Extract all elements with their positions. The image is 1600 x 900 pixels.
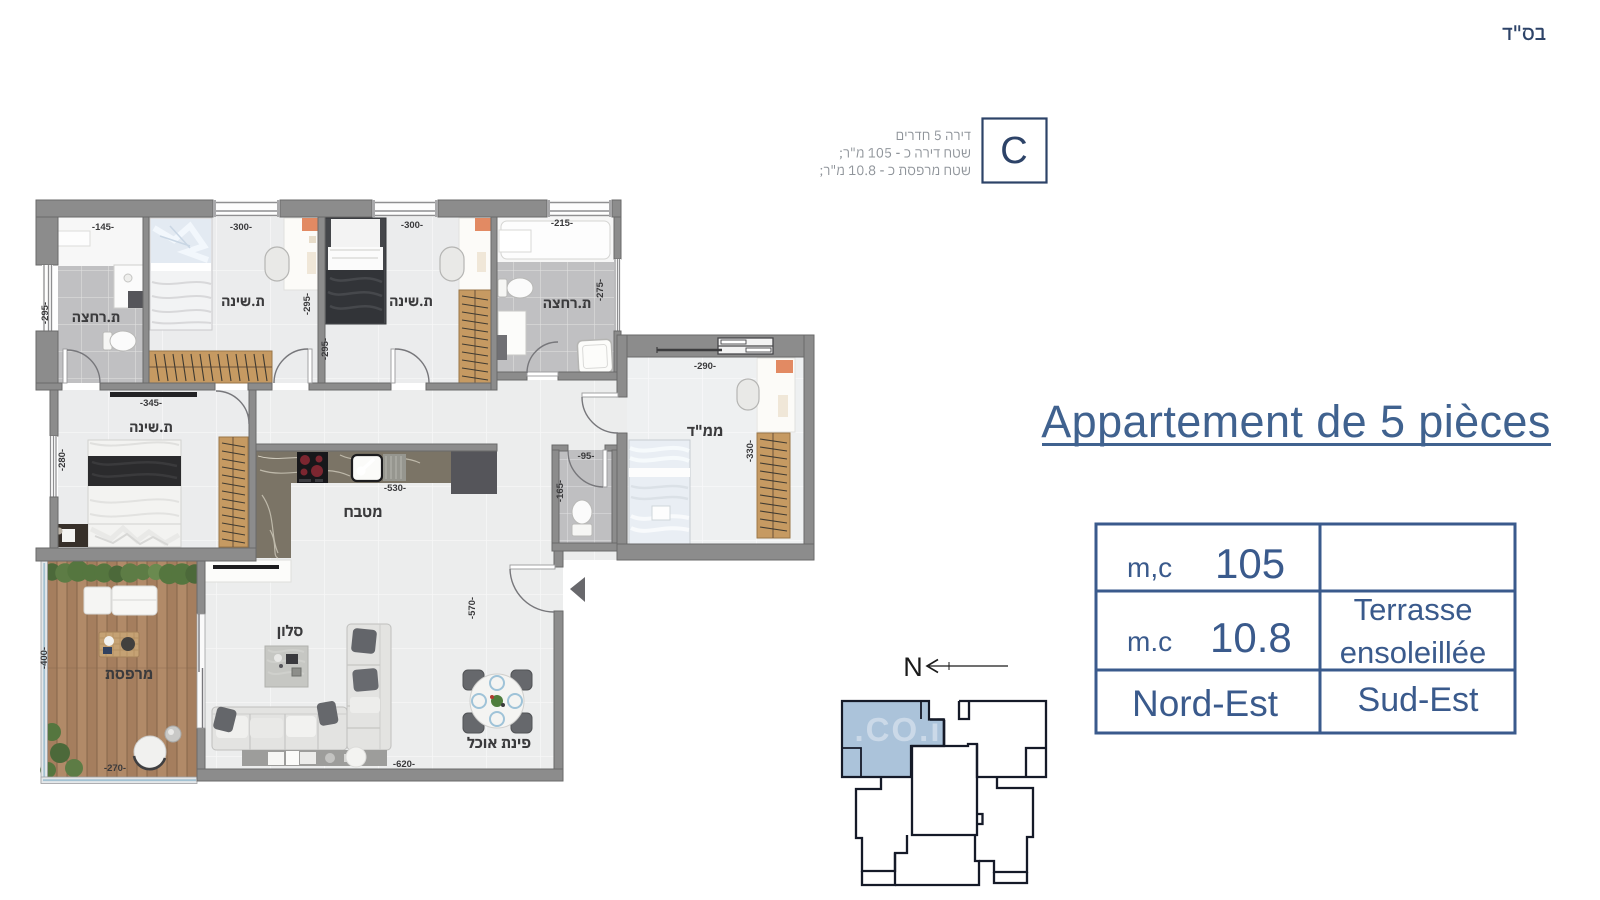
svg-text:105: 105 <box>1215 540 1285 587</box>
svg-text:Nord-Est: Nord-Est <box>1132 683 1279 724</box>
svg-text:-620-: -620- <box>393 759 415 770</box>
svg-text:-270-: -270- <box>104 763 126 774</box>
svg-text:ensoleillée: ensoleillée <box>1340 635 1487 670</box>
svg-text:-165-: -165- <box>555 480 566 502</box>
svg-text:N: N <box>903 652 923 682</box>
svg-text:-400-: -400- <box>39 647 50 669</box>
svg-text:-345-: -345- <box>140 398 162 409</box>
svg-text:-280-: -280- <box>57 449 68 471</box>
svg-text:-290-: -290- <box>694 361 716 372</box>
svg-text:C: C <box>1000 130 1027 172</box>
svg-text:-295-: -295- <box>40 302 51 324</box>
svg-text:Sud-Est: Sud-Est <box>1358 681 1479 719</box>
svg-text:-300-: -300- <box>401 220 423 231</box>
svg-text:Terrasse: Terrasse <box>1354 592 1473 627</box>
svg-text:-300-: -300- <box>230 222 252 233</box>
svg-text:-95-: -95- <box>578 451 595 462</box>
svg-text:-570-: -570- <box>467 597 478 619</box>
svg-text:.CO.i: .CO.i <box>854 711 941 748</box>
svg-text:-215-: -215- <box>551 218 573 229</box>
svg-text:m.c: m.c <box>1127 626 1172 657</box>
svg-text:m,c: m,c <box>1127 552 1172 583</box>
svg-text:-530-: -530- <box>384 483 406 494</box>
svg-text:Appartement de 5 pièces: Appartement de 5 pièces <box>1041 396 1551 447</box>
svg-text:-295-: -295- <box>302 293 313 315</box>
svg-text:-275-: -275- <box>595 279 606 301</box>
svg-text:-295-: -295- <box>320 338 331 360</box>
svg-text:-330-: -330- <box>745 440 756 462</box>
svg-text:10.8: 10.8 <box>1210 614 1292 661</box>
svg-text:-145-: -145- <box>92 222 114 233</box>
